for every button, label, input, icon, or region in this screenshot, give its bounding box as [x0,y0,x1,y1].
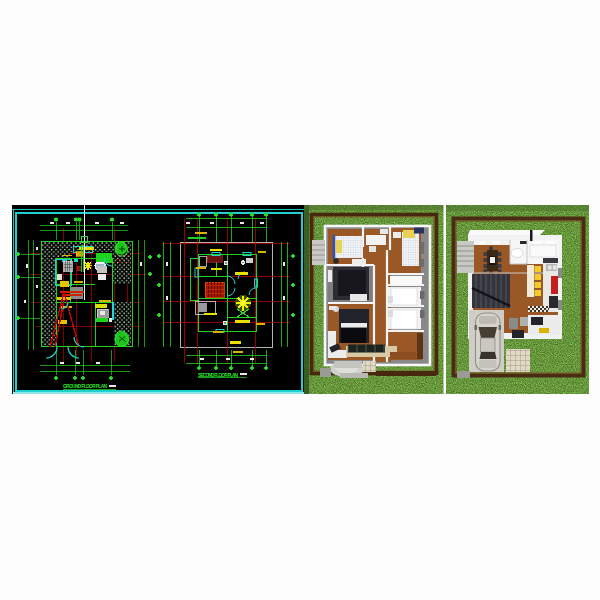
svg-text:GROUND FLOOR PLAN: GROUND FLOOR PLAN [63,384,108,389]
svg-text:SECOND FLOOR PLAN: SECOND FLOOR PLAN [198,373,239,378]
